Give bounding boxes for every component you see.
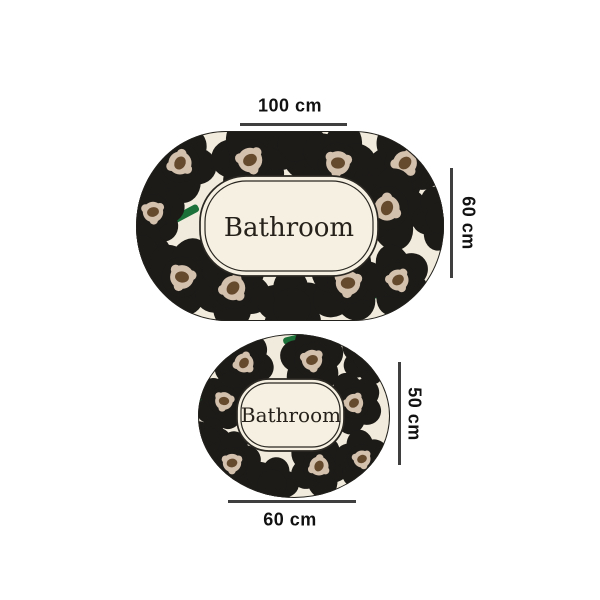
small-mat-height-line [398,362,401,465]
large-mat-width-line [240,123,347,126]
large-mat-graphic: Bathroom [135,130,445,322]
small-mat-height-label: 50 cm [404,387,425,441]
large-bath-mat: Bathroom [135,130,445,322]
small-mat-graphic: Bathroom [197,333,391,499]
large-mat-height-label: 60 cm [458,196,479,250]
small-mat-width-label: 60 cm [263,510,317,531]
small-bath-mat: Bathroom [197,333,391,499]
small-mat-center-text: Bathroom [241,403,341,427]
large-mat-height-line [450,168,453,278]
small-mat-width-line [228,500,356,503]
bath-mat-dimension-diagram: 100 cm Bathroom 60 cm Bathroom 50 cm 60 … [0,0,600,600]
large-mat-center-text: Bathroom [224,213,354,243]
large-mat-width-label: 100 cm [258,96,322,117]
